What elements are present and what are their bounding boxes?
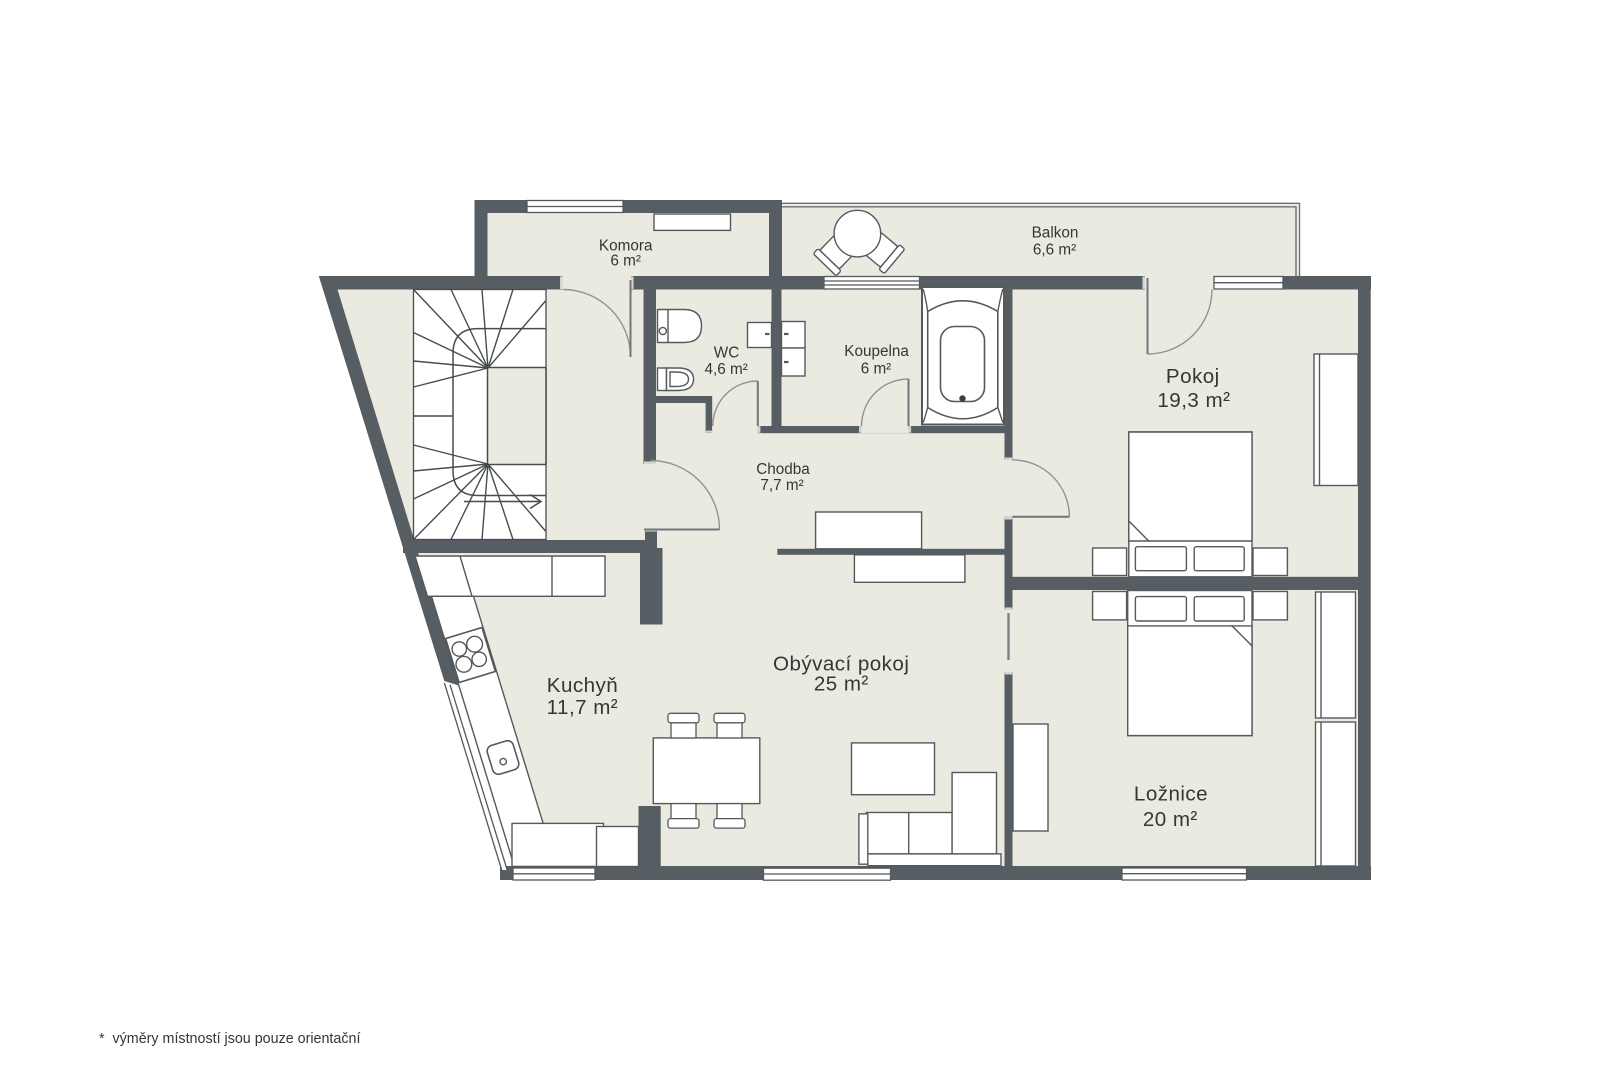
svg-text:Chodba: Chodba <box>756 461 810 478</box>
svg-text:19,3 m²: 19,3 m² <box>1157 389 1230 412</box>
svg-text:* výměry místností jsou pouze: * výměry místností jsou pouze orientační <box>99 1031 360 1047</box>
svg-text:WC: WC <box>714 344 740 361</box>
svg-text:11,7 m²: 11,7 m² <box>547 696 618 719</box>
svg-text:20 m²: 20 m² <box>1143 808 1198 831</box>
svg-text:Ložnice: Ložnice <box>1134 783 1208 806</box>
svg-text:Kuchyň: Kuchyň <box>547 674 618 697</box>
svg-text:25 m²: 25 m² <box>814 672 869 695</box>
svg-text:Balkon: Balkon <box>1032 224 1079 241</box>
svg-text:Koupelna: Koupelna <box>844 343 909 360</box>
svg-text:7,7 m²: 7,7 m² <box>760 477 803 494</box>
svg-text:4,6 m²: 4,6 m² <box>705 361 748 378</box>
svg-text:6,6 m²: 6,6 m² <box>1033 242 1076 259</box>
svg-text:6 m²: 6 m² <box>610 253 641 270</box>
svg-text:Pokoj: Pokoj <box>1166 365 1220 388</box>
svg-text:6 m²: 6 m² <box>861 360 892 377</box>
